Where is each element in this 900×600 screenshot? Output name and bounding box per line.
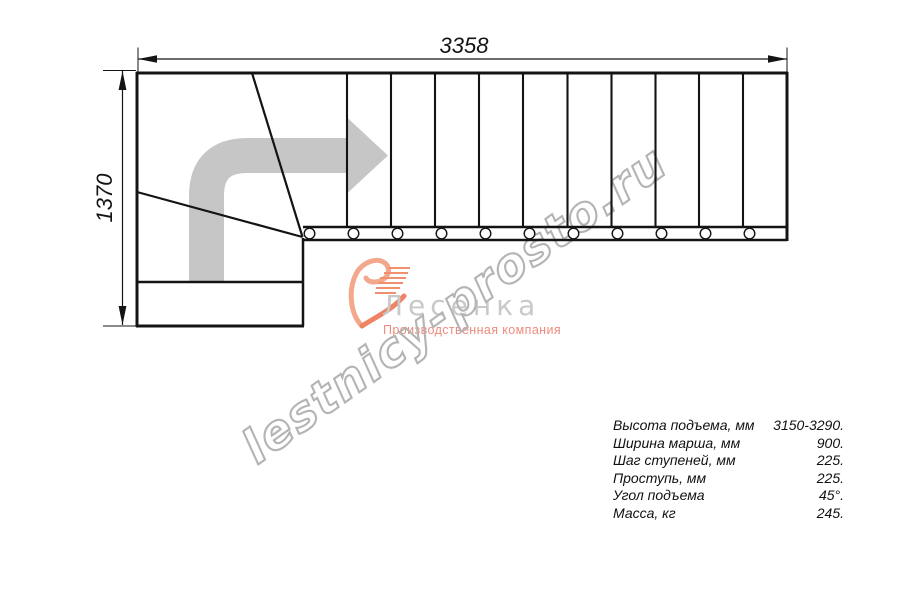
tread-lines <box>347 74 743 227</box>
direction-arrow-shaft <box>207 156 349 284</box>
staircase-outline <box>136 72 788 327</box>
baluster-circle <box>392 228 403 239</box>
baluster-circle <box>700 228 711 239</box>
width-dimension-label: 3358 <box>440 33 490 58</box>
spec-label: Ширина марша, мм <box>613 435 740 453</box>
spec-row: Масса, кг 245. <box>613 505 844 523</box>
specifications-table: Высота подъема, мм 3150-3290. Ширина мар… <box>613 417 844 523</box>
baluster-circle <box>744 228 755 239</box>
height-dimension: 1370 <box>92 71 136 327</box>
baluster-circle <box>304 228 315 239</box>
spec-value: 225. <box>817 470 844 488</box>
spec-label: Проступь, мм <box>613 470 706 488</box>
baluster-circle <box>568 228 579 239</box>
baluster-circle <box>348 228 359 239</box>
dim-arrow-down <box>119 306 127 325</box>
spec-label: Шаг ступеней, мм <box>613 452 736 470</box>
baluster-circle <box>524 228 535 239</box>
spec-value: 45°. <box>819 487 844 505</box>
direction-arrow-head <box>347 118 388 194</box>
spec-value: 245. <box>817 505 844 523</box>
baluster-circle <box>480 228 491 239</box>
direction-arrow <box>207 118 389 284</box>
spec-label: Масса, кг <box>613 505 676 523</box>
dim-arrow-left <box>138 55 157 63</box>
dim-arrow-up <box>119 71 127 90</box>
spec-row: Высота подъема, мм 3150-3290. <box>613 417 844 435</box>
spec-row: Угол подъема 45°. <box>613 487 844 505</box>
dim-arrow-right <box>768 55 787 63</box>
spec-row: Ширина марша, мм 900. <box>613 435 844 453</box>
baluster-circle <box>612 228 623 239</box>
spec-value: 3150-3290. <box>773 417 844 435</box>
spec-label: Угол подъема <box>613 487 705 505</box>
height-dimension-label: 1370 <box>92 173 117 223</box>
staircase-drawing-page: Лесенка Производственная компания lestni… <box>0 0 900 600</box>
spec-row: Шаг ступеней, мм 225. <box>613 452 844 470</box>
spec-value: 900. <box>817 435 844 453</box>
spec-value: 225. <box>817 452 844 470</box>
baluster-circles <box>304 228 755 239</box>
baluster-circle <box>436 228 447 239</box>
width-dimension: 3358 <box>138 33 787 72</box>
spec-row: Проступь, мм 225. <box>613 470 844 488</box>
baluster-circle <box>656 228 667 239</box>
spec-label: Высота подъема, мм <box>613 417 755 435</box>
